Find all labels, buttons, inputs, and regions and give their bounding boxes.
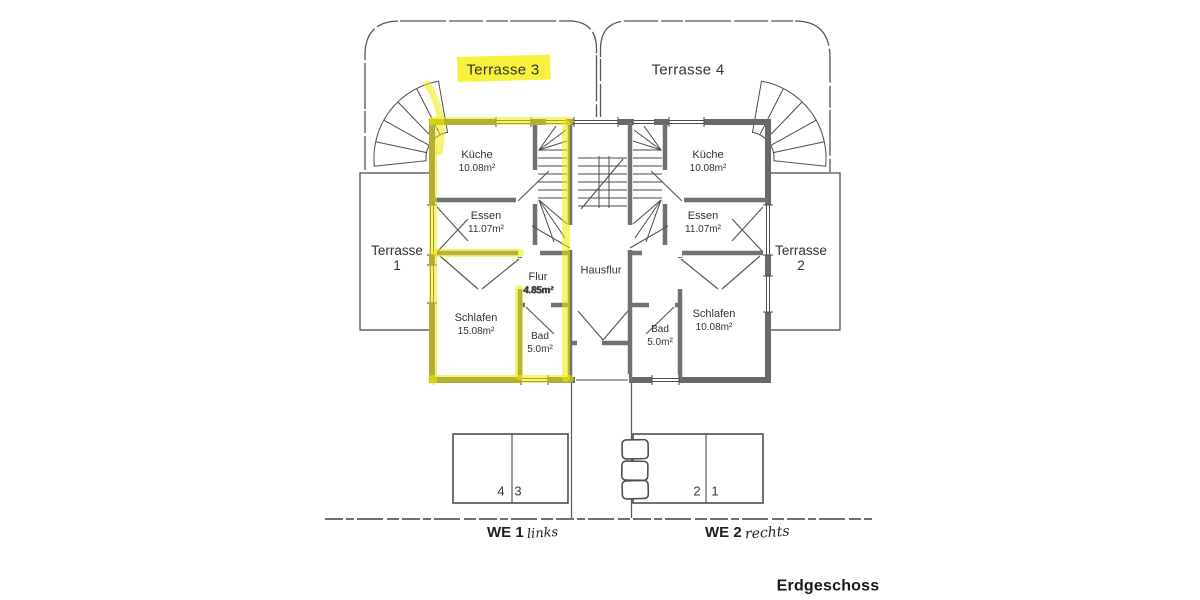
room-label-essen-left: Essen 11.07m²: [468, 210, 504, 236]
stairs-hausflur: [578, 156, 627, 209]
room-label-schlafen-right: Schlafen 10.08m²: [693, 308, 736, 334]
room-label-schlafen-left: Schlafen 15.08m²: [455, 312, 498, 338]
parking-spot-3: 3: [514, 485, 521, 498]
label-terrasse-4: Terrasse 4: [651, 64, 724, 77]
parking-spot-1: 1: [711, 485, 718, 498]
terrace-outline-left: [365, 21, 597, 170]
label-we2: WE 2rechts: [705, 526, 789, 540]
label-we1: WE 1links: [487, 526, 558, 540]
label-terrasse-3: Terrasse 3: [466, 64, 539, 77]
room-label-kueche-right: Küche 10.08m²: [690, 149, 727, 175]
room-label-flur-left: Flur 4.85m²: [523, 271, 553, 297]
parking-spot-2: 2: [693, 485, 700, 498]
room-label-bad-left: Bad 5.0m²: [527, 330, 553, 356]
label-terrasse-2: Terrasse 2: [775, 243, 827, 273]
floor-plan-page: Terrasse 3 Terrasse 4 Terrasse 1 Terrass…: [0, 0, 1200, 600]
parking-left-box: [453, 434, 568, 503]
label-hausflur: Hausflur: [581, 265, 622, 278]
room-label-essen-right: Essen 11.07m²: [685, 210, 721, 236]
parking-spot-4: 4: [497, 485, 504, 498]
stairs-right-unit: [633, 126, 662, 242]
floor-plan-drawing: [0, 0, 1200, 600]
room-label-kueche-left: Küche 10.08m²: [459, 149, 496, 175]
label-erdgeschoss: Erdgeschoss: [777, 580, 880, 593]
room-label-bad-right: Bad 5.0m²: [647, 323, 673, 349]
label-terrasse-1: Terrasse 1: [371, 243, 423, 273]
parking-right-box: [622, 434, 763, 503]
